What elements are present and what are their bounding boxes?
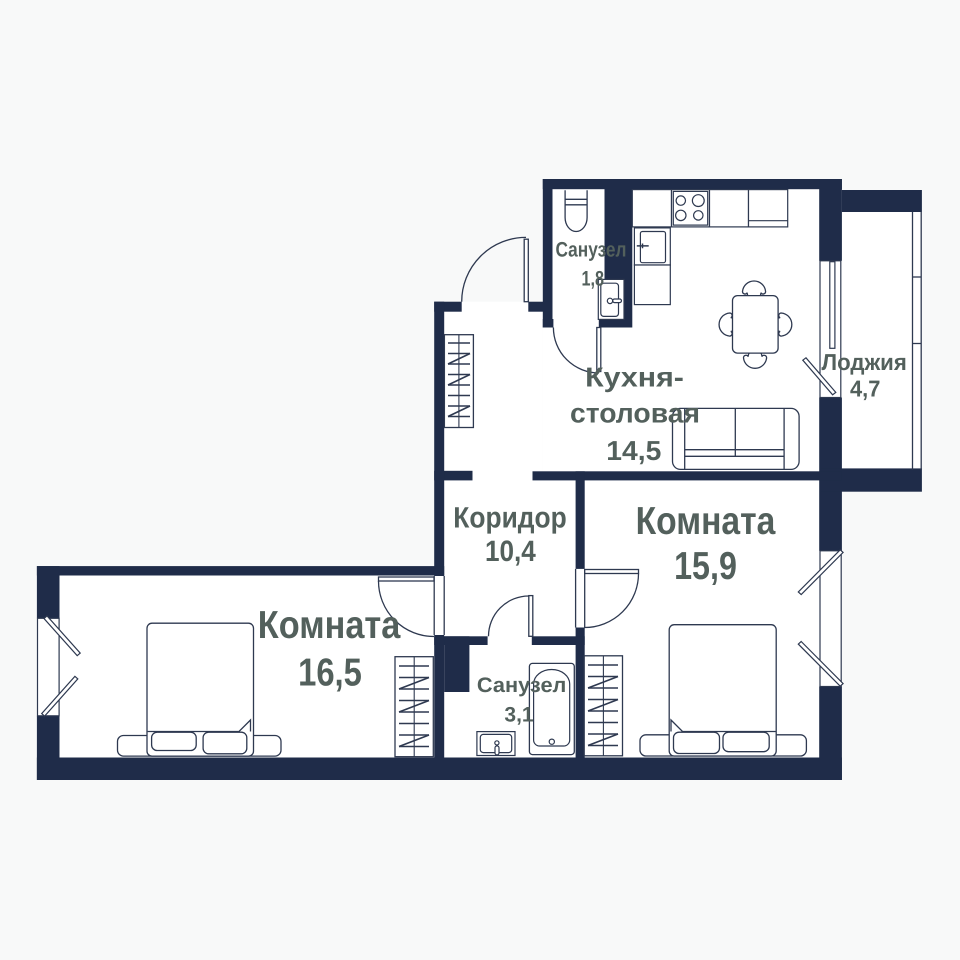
svg-text:1,8: 1,8 <box>582 267 605 290</box>
svg-text:4,7: 4,7 <box>850 375 880 401</box>
svg-text:10,4: 10,4 <box>485 535 536 568</box>
svg-text:14,5: 14,5 <box>606 435 661 466</box>
svg-text:Санузел: Санузел <box>477 674 567 697</box>
svg-text:столовая: столовая <box>570 398 700 429</box>
svg-text:Лоджия: Лоджия <box>822 349 907 375</box>
svg-text:Кухня-: Кухня- <box>585 361 684 392</box>
svg-text:3,1: 3,1 <box>504 704 534 727</box>
svg-text:16,5: 16,5 <box>298 652 362 695</box>
svg-text:Комната: Комната <box>636 500 776 543</box>
svg-text:Санузел: Санузел <box>556 239 627 262</box>
svg-text:Комната: Комната <box>258 604 401 647</box>
svg-text:Коридор: Коридор <box>453 502 566 535</box>
svg-text:15,9: 15,9 <box>674 545 737 588</box>
